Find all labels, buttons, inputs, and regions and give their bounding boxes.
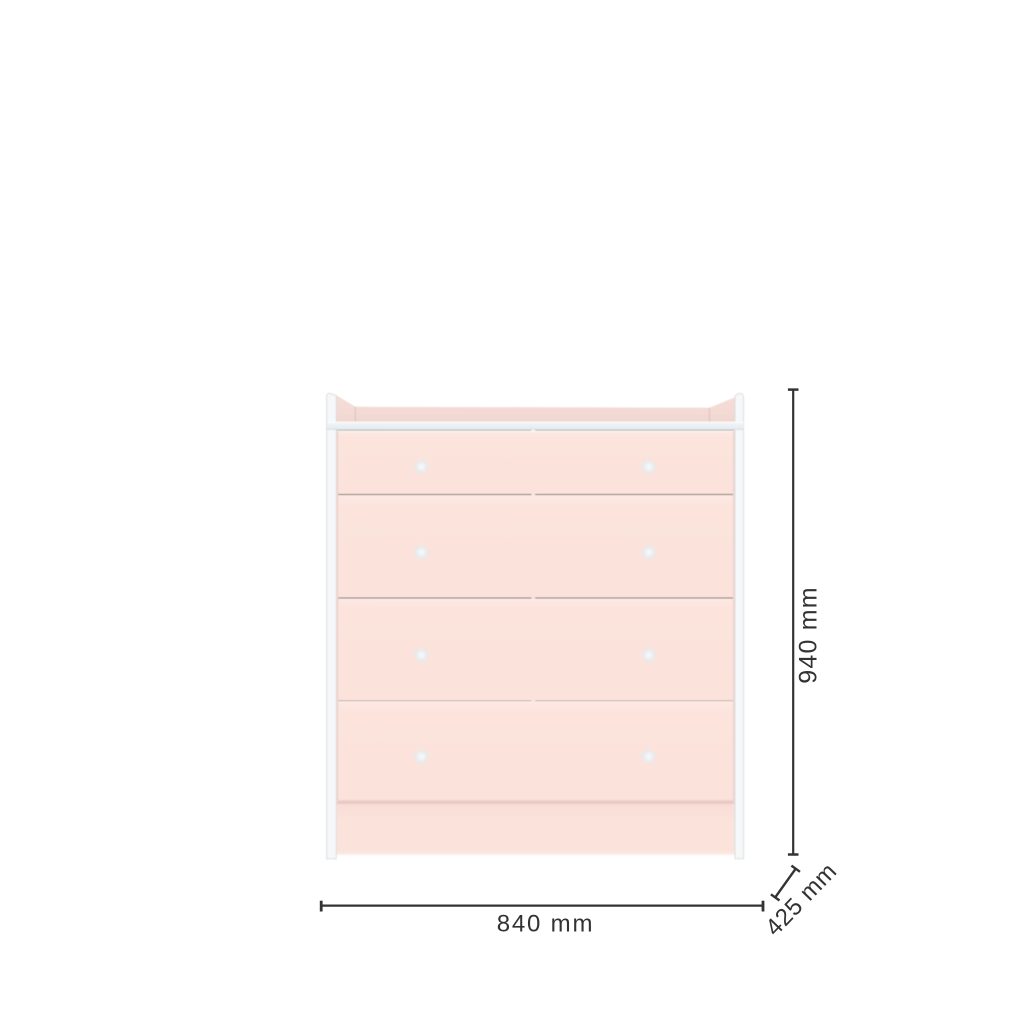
svg-text:940 mm: 940 mm [794,586,822,684]
svg-text:840 mm: 840 mm [497,911,595,938]
svg-text:425 mm: 425 mm [760,858,842,942]
